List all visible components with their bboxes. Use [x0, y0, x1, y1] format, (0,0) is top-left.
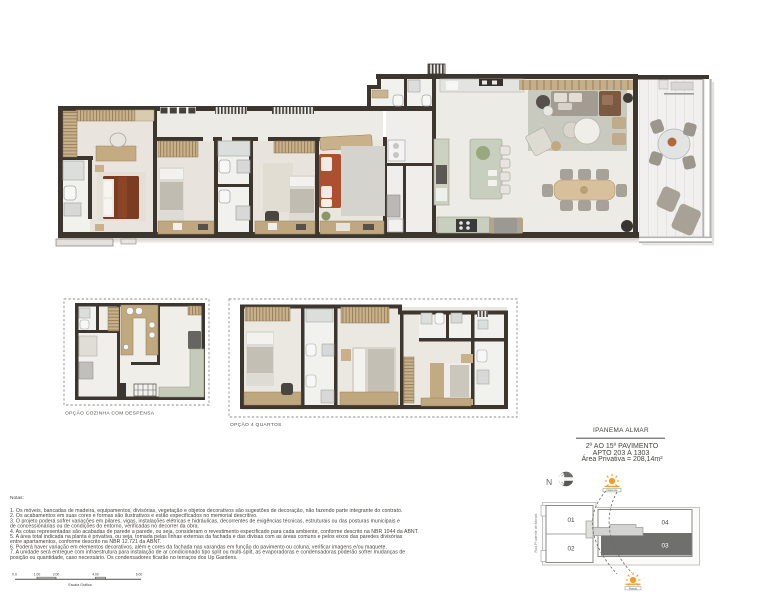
svg-text:6.00: 6.00 [136, 573, 143, 577]
svg-text:0.0: 0.0 [12, 573, 17, 577]
svg-text:2.00: 2.00 [53, 573, 60, 577]
svg-text:1.00: 1.00 [34, 573, 41, 577]
svg-text:04: 04 [661, 520, 669, 527]
svg-text:IPANEMA ALMAR: IPANEMA ALMAR [593, 427, 649, 434]
svg-text:Área Privativa = 208,14m²: Área Privativa = 208,14m² [581, 454, 663, 463]
svg-text:Poente: Poente [629, 586, 638, 590]
svg-text:Escala Gráfica: Escala Gráfica [68, 583, 91, 587]
svg-text:N: N [546, 477, 552, 487]
svg-text:01: 01 [567, 517, 575, 524]
svg-text:OPÇÃO COZINHA COM DESPENSA: OPÇÃO COZINHA COM DESPENSA [65, 410, 155, 417]
svg-text:02: 02 [567, 546, 575, 553]
svg-text:OPÇÃO 4 QUARTOS: OPÇÃO 4 QUARTOS [230, 421, 282, 428]
svg-text:Nascente: Nascente [607, 488, 619, 492]
svg-text:Notas:: Notas: [10, 495, 24, 501]
svg-text:Rua Prudente de Morais: Rua Prudente de Morais [534, 513, 538, 552]
svg-text:03: 03 [661, 543, 669, 550]
svg-text:4.00: 4.00 [92, 573, 99, 577]
svg-text:posição ou quantidade, caso ne: posição ou quantidade, caso necessário. … [10, 555, 238, 561]
